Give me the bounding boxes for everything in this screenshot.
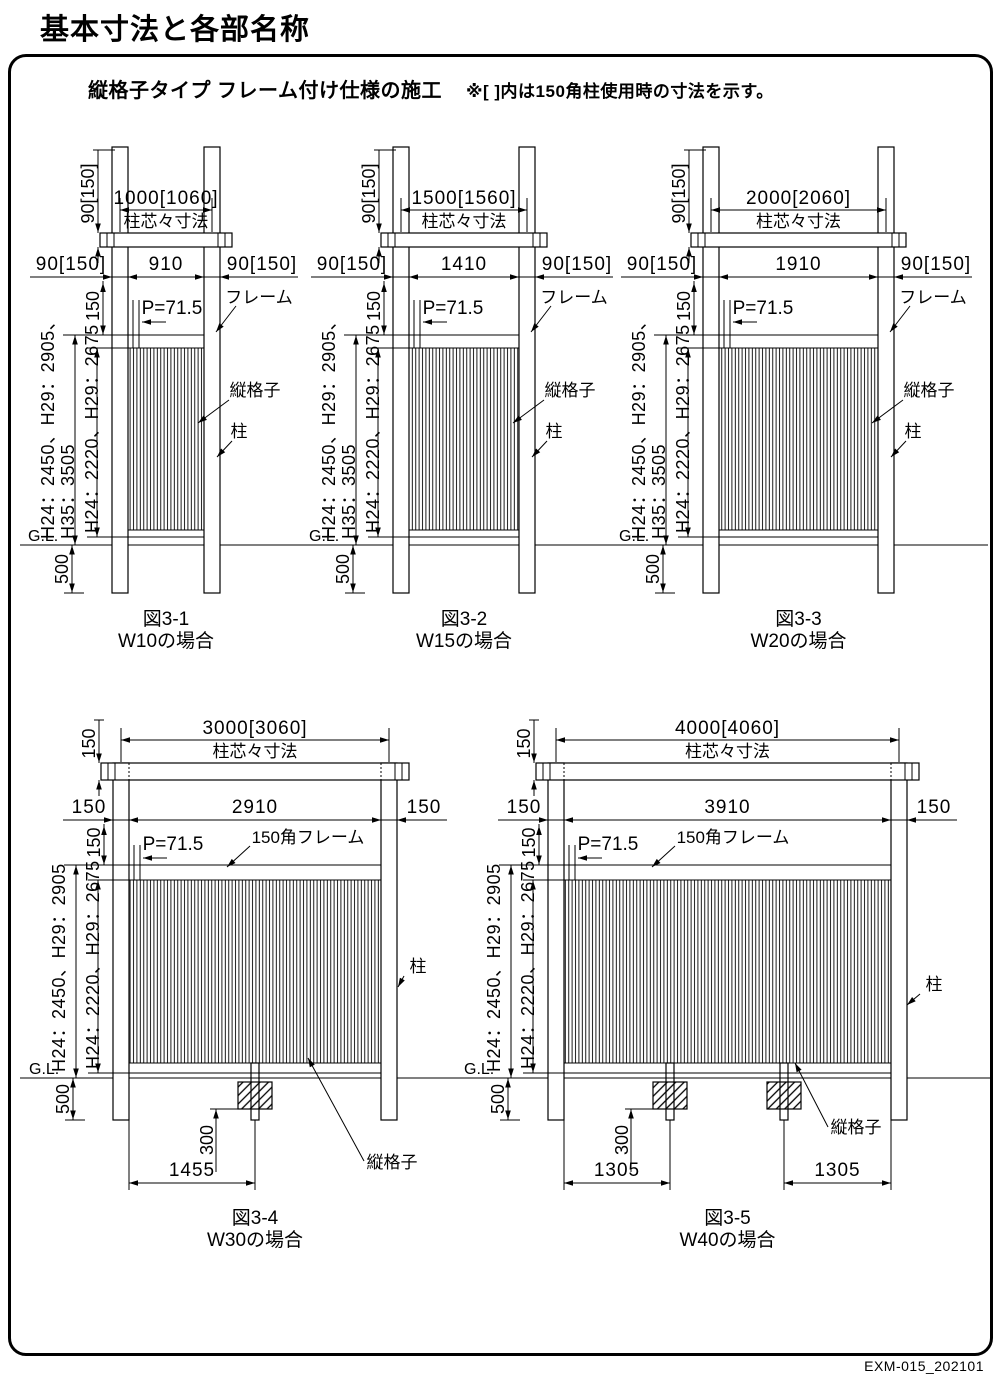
label-height-outer-1: H24：2450、H29：2905 (484, 863, 504, 1072)
dim-pitch: P=71.5 (143, 834, 204, 855)
label-frame: フレーム (225, 288, 293, 307)
dim-pitch: P=71.5 (142, 298, 203, 319)
dim-margin-right: 150 (917, 797, 952, 818)
dim-span: 1000[1060] (113, 188, 218, 209)
label-ground-line: G.L. (29, 1061, 59, 1078)
dim-spacing: 1305 (594, 1160, 640, 1181)
dim-rail-height: 90[150] (78, 163, 98, 223)
footer-code: EXM-015_202101 (864, 1358, 984, 1374)
label-frame: フレーム (899, 288, 967, 307)
dim-margin-right: 90[150] (227, 254, 297, 275)
dim-margin-left: 150 (507, 797, 542, 818)
caption-number: 図3-2 (441, 609, 487, 630)
label-ground-line: G.L. (28, 528, 58, 545)
dim-frame-height: 150 (519, 827, 539, 857)
figure-3-3: 2000[2060]柱芯々寸法90[150]90[150]191090[150]… (614, 147, 988, 652)
dim-embed: 500 (333, 554, 353, 584)
dim-span: 1500[1560] (411, 188, 516, 209)
dim-panel-width: 1910 (775, 254, 821, 275)
label-post: 柱 (546, 422, 563, 441)
caption-case: W10の場合 (118, 630, 214, 652)
label-post: 柱 (926, 975, 943, 994)
label-lattice: 縦格子 (367, 1153, 418, 1172)
dim-embed: 500 (53, 1084, 73, 1114)
caption-number: 図3-1 (143, 609, 189, 630)
dim-rail-height: 90[150] (669, 163, 689, 223)
dim-block-depth: 300 (612, 1125, 632, 1155)
label-ground-line: G.L. (619, 528, 649, 545)
label-post: 柱 (905, 422, 922, 441)
label-lattice: 縦格子 (545, 381, 596, 400)
dim-span: 4000[4060] (675, 718, 780, 739)
dim-frame-height: 150 (364, 291, 384, 321)
caption-number: 図3-4 (232, 1208, 279, 1229)
dim-frame-height: 150 (83, 291, 103, 321)
label-height-inner: H24：2220、H29：2675 (518, 860, 538, 1069)
figure-3-2: 1500[1560]柱芯々寸法90[150]90[150]141090[150]… (302, 147, 616, 652)
dim-frame-height: 150 (674, 291, 694, 321)
dim-block-depth: 300 (197, 1125, 217, 1155)
dim-panel-width: 3910 (704, 797, 750, 818)
dim-spacing: 1455 (169, 1160, 215, 1181)
label-height-inner: H24：2220、H29：2675 (82, 324, 102, 533)
dim-span-sub: 柱芯々寸法 (422, 212, 507, 231)
label-height-inner: H24：2220、H29：2675 (83, 860, 103, 1069)
dim-span-sub: 柱芯々寸法 (213, 742, 298, 761)
label-frame: 150角フレーム (677, 828, 790, 847)
dim-pitch: P=71.5 (733, 298, 794, 319)
dim-panel-width: 1410 (441, 254, 487, 275)
label-ground-line: G.L. (464, 1061, 494, 1078)
dim-embed: 500 (643, 554, 663, 584)
label-post: 柱 (410, 957, 427, 976)
label-height-inner: H24：2220、H29：2675 (673, 324, 693, 533)
label-height-outer-1: H24：2450、H29：2905、 (319, 312, 339, 539)
dim-panel-width: 910 (149, 254, 184, 275)
dim-pitch: P=71.5 (423, 298, 484, 319)
caption-case: W20の場合 (750, 630, 846, 652)
label-lattice: 縦格子 (904, 381, 955, 400)
dim-margin-right: 90[150] (542, 254, 612, 275)
figure-3-1: 1000[1060]柱芯々寸法90[150]90[150]91090[150]1… (20, 147, 310, 652)
label-height-outer-2: H35：3505 (649, 444, 669, 539)
label-height-outer-1: H24：2450、H29：2905 (49, 863, 69, 1072)
label-height-outer-2: H35：3505 (339, 444, 359, 539)
dim-span: 2000[2060] (746, 188, 851, 209)
figure-3-5: 4000[4060]柱芯々寸法1501503910150150P=71.5500… (452, 718, 990, 1251)
label-lattice: 縦格子 (831, 1118, 882, 1137)
label-lattice: 縦格子 (230, 381, 281, 400)
dim-embed: 500 (488, 1084, 508, 1114)
dim-rail-height: 150 (514, 728, 534, 758)
dim-pitch: P=71.5 (578, 834, 639, 855)
dim-span-sub: 柱芯々寸法 (685, 742, 770, 761)
dim-margin-left: 90[150] (317, 254, 387, 275)
label-ground-line: G.L. (309, 528, 339, 545)
dim-embed: 500 (52, 554, 72, 584)
dim-rail-height: 90[150] (359, 163, 379, 223)
dim-panel-width: 2910 (232, 797, 278, 818)
label-height-outer-1: H24：2450、H29：2905、 (38, 312, 58, 539)
label-frame: 150角フレーム (252, 828, 365, 847)
caption-case: W15の場合 (416, 630, 512, 652)
label-frame: フレーム (540, 288, 608, 307)
label-height-outer-1: H24：2450、H29：2905、 (629, 312, 649, 539)
dim-margin-right: 150 (407, 797, 442, 818)
diagram-canvas: 1000[1060]柱芯々寸法90[150]90[150]91090[150]1… (0, 0, 1000, 1387)
dim-span-sub: 柱芯々寸法 (124, 212, 209, 231)
caption-number: 図3-3 (775, 609, 821, 630)
label-height-inner: H24：2220、H29：2675 (363, 324, 383, 533)
dim-margin-left: 150 (72, 797, 107, 818)
caption-case: W40の場合 (679, 1229, 775, 1251)
dim-margin-left: 90[150] (36, 254, 106, 275)
label-post: 柱 (231, 422, 248, 441)
dim-spacing: 1305 (814, 1160, 860, 1181)
caption-case: W30の場合 (207, 1229, 303, 1251)
dim-margin-right: 90[150] (901, 254, 971, 275)
dim-frame-height: 150 (84, 827, 104, 857)
dim-span-sub: 柱芯々寸法 (756, 212, 841, 231)
dim-margin-left: 90[150] (627, 254, 697, 275)
label-height-outer-2: H35：3505 (58, 444, 78, 539)
figure-3-4: 3000[3060]柱芯々寸法1501502910150150P=71.5500… (20, 718, 452, 1251)
dim-span: 3000[3060] (202, 718, 307, 739)
caption-number: 図3-5 (704, 1208, 750, 1229)
page: 基本寸法と各部名称 縦格子タイプ フレーム付け仕様の施工 ※[ ]内は150角柱… (0, 0, 1000, 1387)
dim-rail-height: 150 (79, 728, 99, 758)
